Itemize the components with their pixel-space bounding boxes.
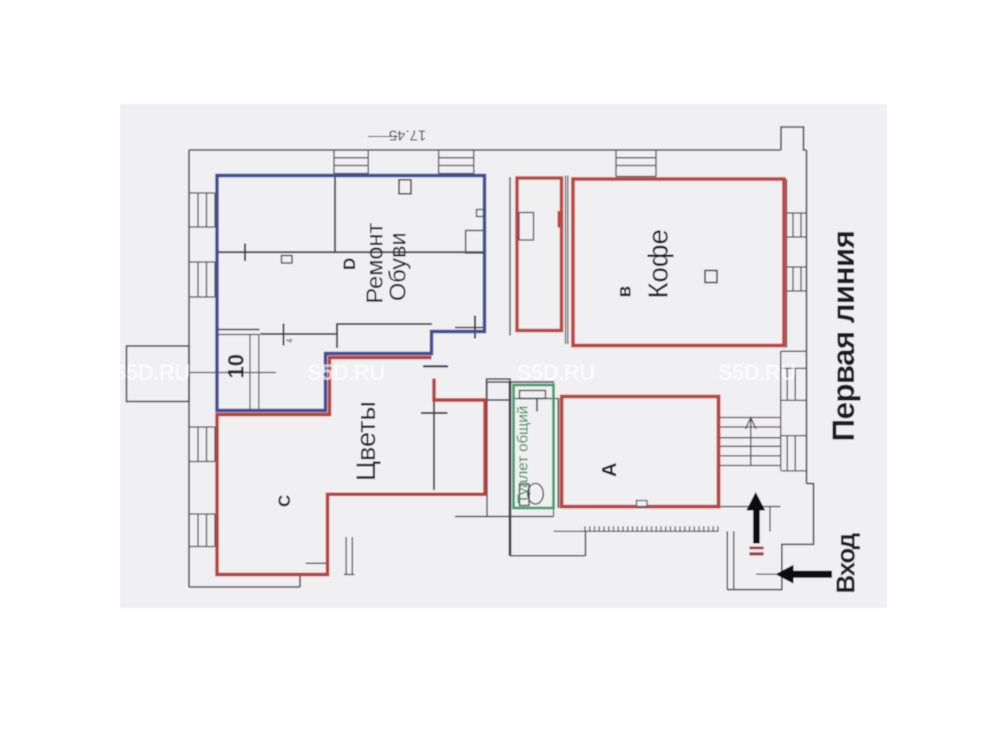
svg-text:А: А [599,463,621,477]
svg-text:S5D.RU: S5D.RU [112,360,190,385]
svg-text:S5D.RU: S5D.RU [517,360,595,385]
svg-text:17.45: 17.45 [389,127,427,144]
svg-text:Цветы: Цветы [351,401,381,481]
svg-text:Кофе: Кофе [643,229,674,298]
svg-text:в: в [615,286,636,298]
svg-text:Первая линия: Первая линия [825,231,861,442]
svg-text:S5D.RU: S5D.RU [718,360,796,385]
svg-text:10: 10 [224,354,249,378]
svg-text:S5D.RU: S5D.RU [307,360,385,385]
svg-text:Вход: Вход [831,532,861,593]
svg-text:Туалет общий: Туалет общий [515,406,532,504]
svg-text:4: 4 [286,338,295,343]
svg-text:D: D [340,258,359,270]
svg-text:C: C [275,495,294,507]
svg-text:Обуви: Обуви [385,232,411,301]
